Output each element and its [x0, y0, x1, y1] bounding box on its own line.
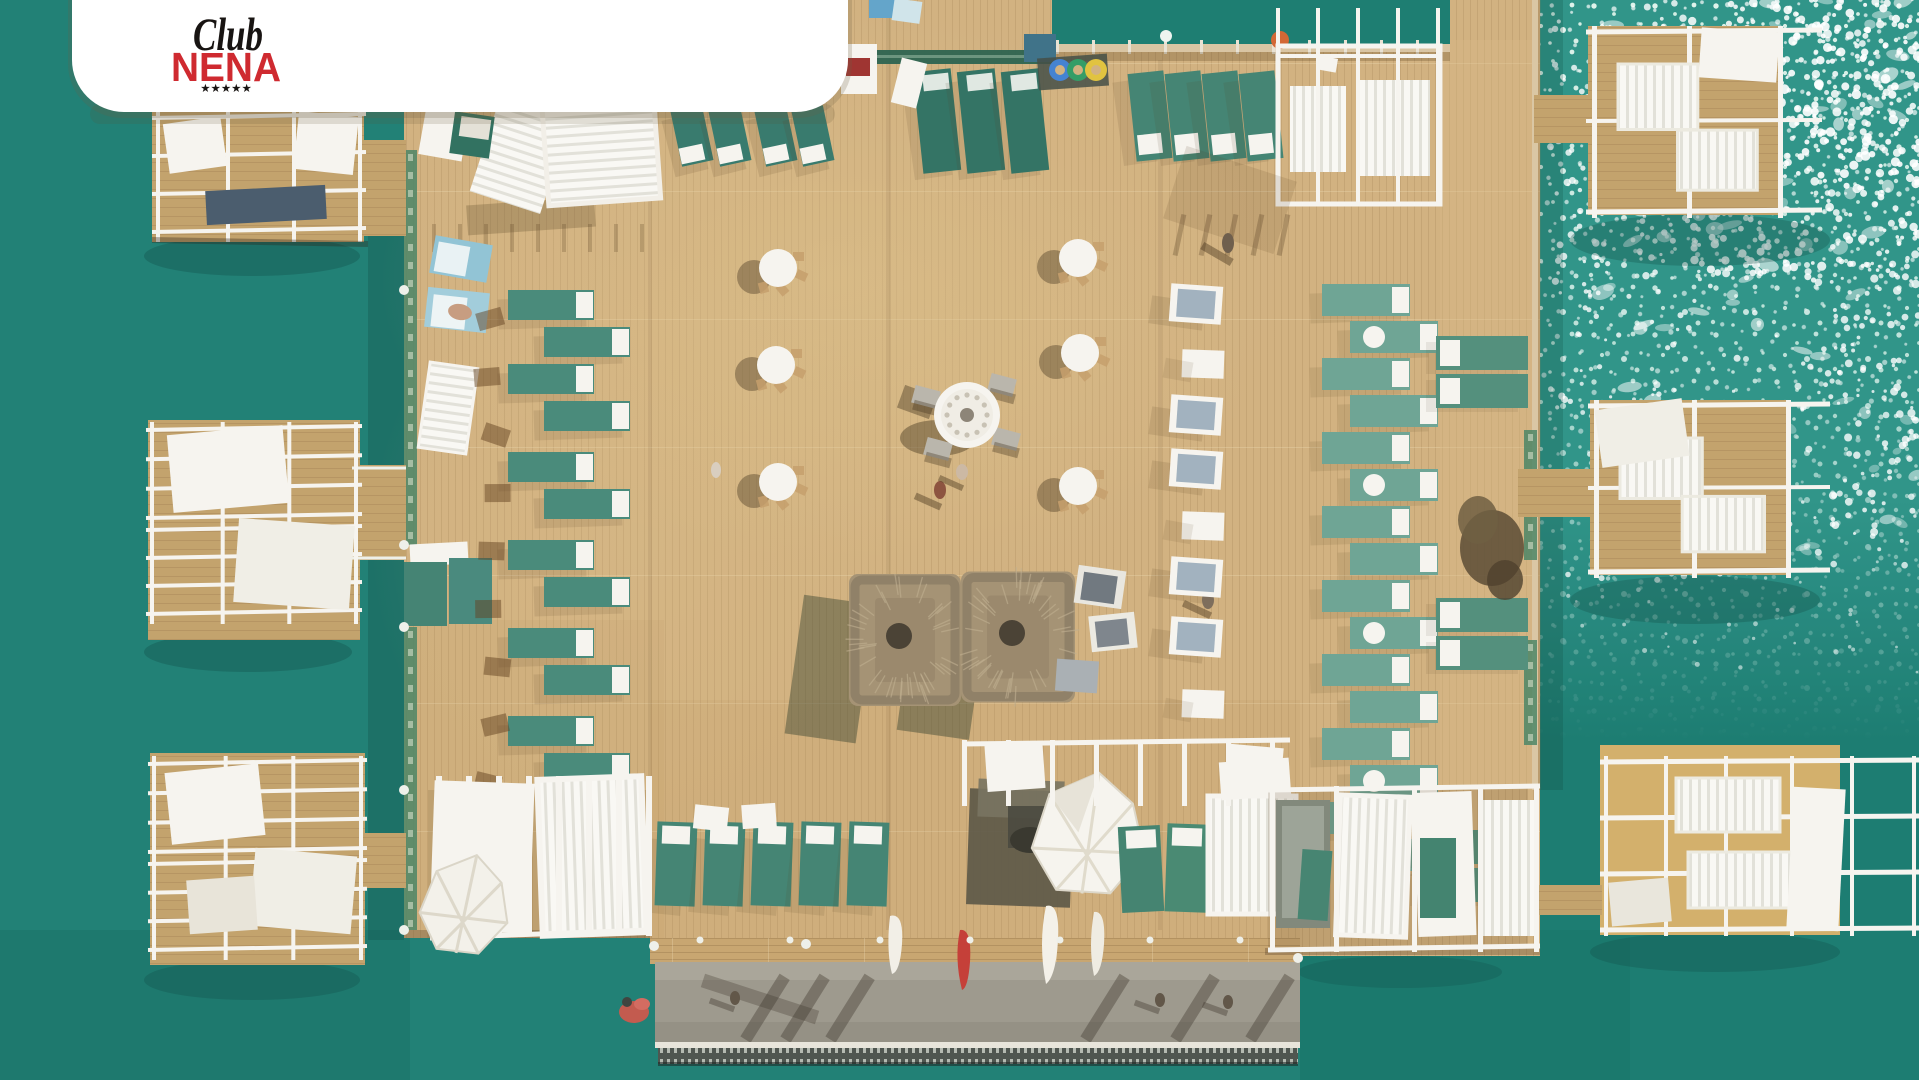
- svg-text:★★★★★: ★★★★★: [200, 83, 252, 95]
